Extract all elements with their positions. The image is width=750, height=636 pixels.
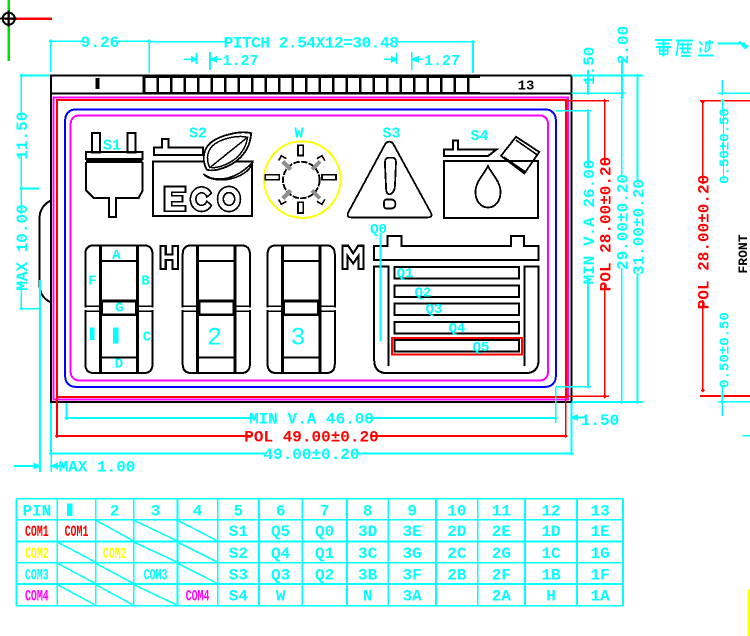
- svg-text:2A: 2A: [492, 588, 512, 606]
- svg-text:2: 2: [110, 502, 120, 520]
- svg-text:3B: 3B: [358, 566, 378, 584]
- svg-text:3D: 3D: [358, 523, 377, 541]
- svg-text:G: G: [115, 301, 123, 317]
- svg-text:4: 4: [193, 502, 203, 520]
- svg-text:2C: 2C: [447, 545, 467, 563]
- svg-text:H: H: [546, 588, 556, 606]
- svg-text:W: W: [294, 126, 303, 143]
- svg-text:POL 28.00±0.20: POL 28.00±0.20: [696, 175, 714, 309]
- svg-text:Q2: Q2: [315, 566, 334, 584]
- svg-text:MIN V.A 46.00: MIN V.A 46.00: [249, 411, 374, 429]
- svg-text:1F: 1F: [590, 566, 609, 584]
- svg-text:S2: S2: [229, 545, 248, 563]
- svg-text:31.00±0.20: 31.00±0.20: [630, 179, 648, 275]
- svg-text:Q0: Q0: [370, 222, 387, 238]
- svg-text:1.27: 1.27: [222, 53, 258, 70]
- svg-text:3: 3: [151, 502, 161, 520]
- svg-text:2: 2: [207, 324, 222, 353]
- svg-text:Q4: Q4: [271, 545, 291, 563]
- svg-text:9.26: 9.26: [81, 34, 119, 52]
- svg-text:3: 3: [290, 324, 305, 353]
- svg-text:COM4: COM4: [25, 587, 49, 605]
- svg-text:S3: S3: [382, 126, 400, 143]
- svg-text:3E: 3E: [403, 523, 422, 541]
- svg-text:8: 8: [363, 502, 373, 520]
- svg-text:1G: 1G: [590, 545, 609, 563]
- svg-text:Q3: Q3: [426, 302, 443, 318]
- svg-text:9: 9: [407, 502, 417, 520]
- svg-text:2E: 2E: [492, 523, 511, 541]
- svg-text:COM1: COM1: [65, 523, 89, 541]
- svg-text:10: 10: [447, 502, 466, 520]
- svg-text:11.50: 11.50: [14, 112, 32, 160]
- svg-text:1.50: 1.50: [581, 412, 619, 430]
- svg-text:N: N: [363, 588, 373, 606]
- svg-text:0.50±0.50: 0.50±0.50: [717, 312, 733, 388]
- svg-text:11: 11: [492, 502, 511, 520]
- svg-text:Q2: Q2: [415, 286, 432, 302]
- svg-text:COM4: COM4: [186, 587, 210, 605]
- svg-text:COM2: COM2: [25, 545, 49, 563]
- svg-text:Q0: Q0: [315, 523, 334, 541]
- svg-text:MAX 10.00: MAX 10.00: [14, 204, 32, 290]
- svg-text:6: 6: [276, 502, 286, 520]
- svg-text:PIN: PIN: [22, 502, 51, 520]
- svg-text:2F: 2F: [492, 566, 511, 584]
- svg-text:1B: 1B: [541, 566, 561, 584]
- svg-text:PITCH 2.54X12=30.48: PITCH 2.54X12=30.48: [224, 35, 399, 53]
- svg-text:S3: S3: [229, 566, 248, 584]
- svg-text:1E: 1E: [590, 523, 609, 541]
- svg-text:3C: 3C: [358, 545, 378, 563]
- svg-text:MIN V.A 26.00: MIN V.A 26.00: [581, 160, 599, 285]
- svg-text:0.50±0.50: 0.50±0.50: [717, 108, 733, 184]
- svg-text:COM1: COM1: [25, 523, 49, 541]
- svg-text:1.50: 1.50: [581, 47, 599, 85]
- svg-text:Q5: Q5: [271, 523, 290, 541]
- svg-text:Q3: Q3: [271, 566, 290, 584]
- svg-text:B: B: [141, 274, 150, 290]
- svg-text:Q1: Q1: [315, 545, 334, 563]
- svg-text:2.00: 2.00: [615, 26, 633, 64]
- svg-text:1A: 1A: [590, 588, 610, 606]
- svg-text:COM3: COM3: [25, 566, 49, 584]
- svg-text:49.00±0.20: 49.00±0.20: [263, 446, 359, 464]
- svg-text:S4: S4: [470, 128, 488, 145]
- svg-text:A: A: [112, 248, 121, 264]
- svg-text:S1: S1: [103, 138, 121, 155]
- svg-text:C: C: [143, 330, 152, 346]
- svg-text:2G: 2G: [492, 545, 511, 563]
- svg-text:Q4: Q4: [449, 321, 466, 337]
- svg-text:3F: 3F: [403, 566, 422, 584]
- svg-text:POL 49.00±0.20: POL 49.00±0.20: [244, 429, 378, 447]
- svg-text:13: 13: [518, 79, 535, 95]
- svg-text:S1: S1: [229, 523, 248, 541]
- svg-text:13: 13: [590, 502, 609, 520]
- svg-text:1C: 1C: [541, 545, 561, 563]
- svg-text:MAX 1.00: MAX 1.00: [59, 459, 136, 477]
- svg-text:S2: S2: [189, 126, 207, 143]
- svg-text:F: F: [88, 274, 96, 290]
- svg-text:COM3: COM3: [144, 566, 168, 584]
- svg-text:Q1: Q1: [397, 266, 414, 282]
- svg-text:12: 12: [541, 502, 560, 520]
- svg-text:D: D: [115, 356, 123, 372]
- svg-text:POL 28.00±0.20: POL 28.00±0.20: [598, 157, 616, 291]
- svg-text:1D: 1D: [541, 523, 560, 541]
- svg-text:1.27: 1.27: [424, 53, 460, 70]
- svg-text:COM2: COM2: [103, 545, 127, 563]
- svg-text:3A: 3A: [403, 588, 423, 606]
- svg-text:7: 7: [320, 502, 330, 520]
- svg-text:2B: 2B: [447, 566, 467, 584]
- svg-text:W: W: [276, 588, 286, 606]
- svg-text:5: 5: [234, 502, 244, 520]
- svg-text:2D: 2D: [447, 523, 466, 541]
- svg-text:3G: 3G: [403, 545, 422, 563]
- svg-text:Q5: Q5: [473, 340, 490, 356]
- svg-text:S4: S4: [229, 588, 249, 606]
- svg-text:FRONT: FRONT: [736, 234, 750, 273]
